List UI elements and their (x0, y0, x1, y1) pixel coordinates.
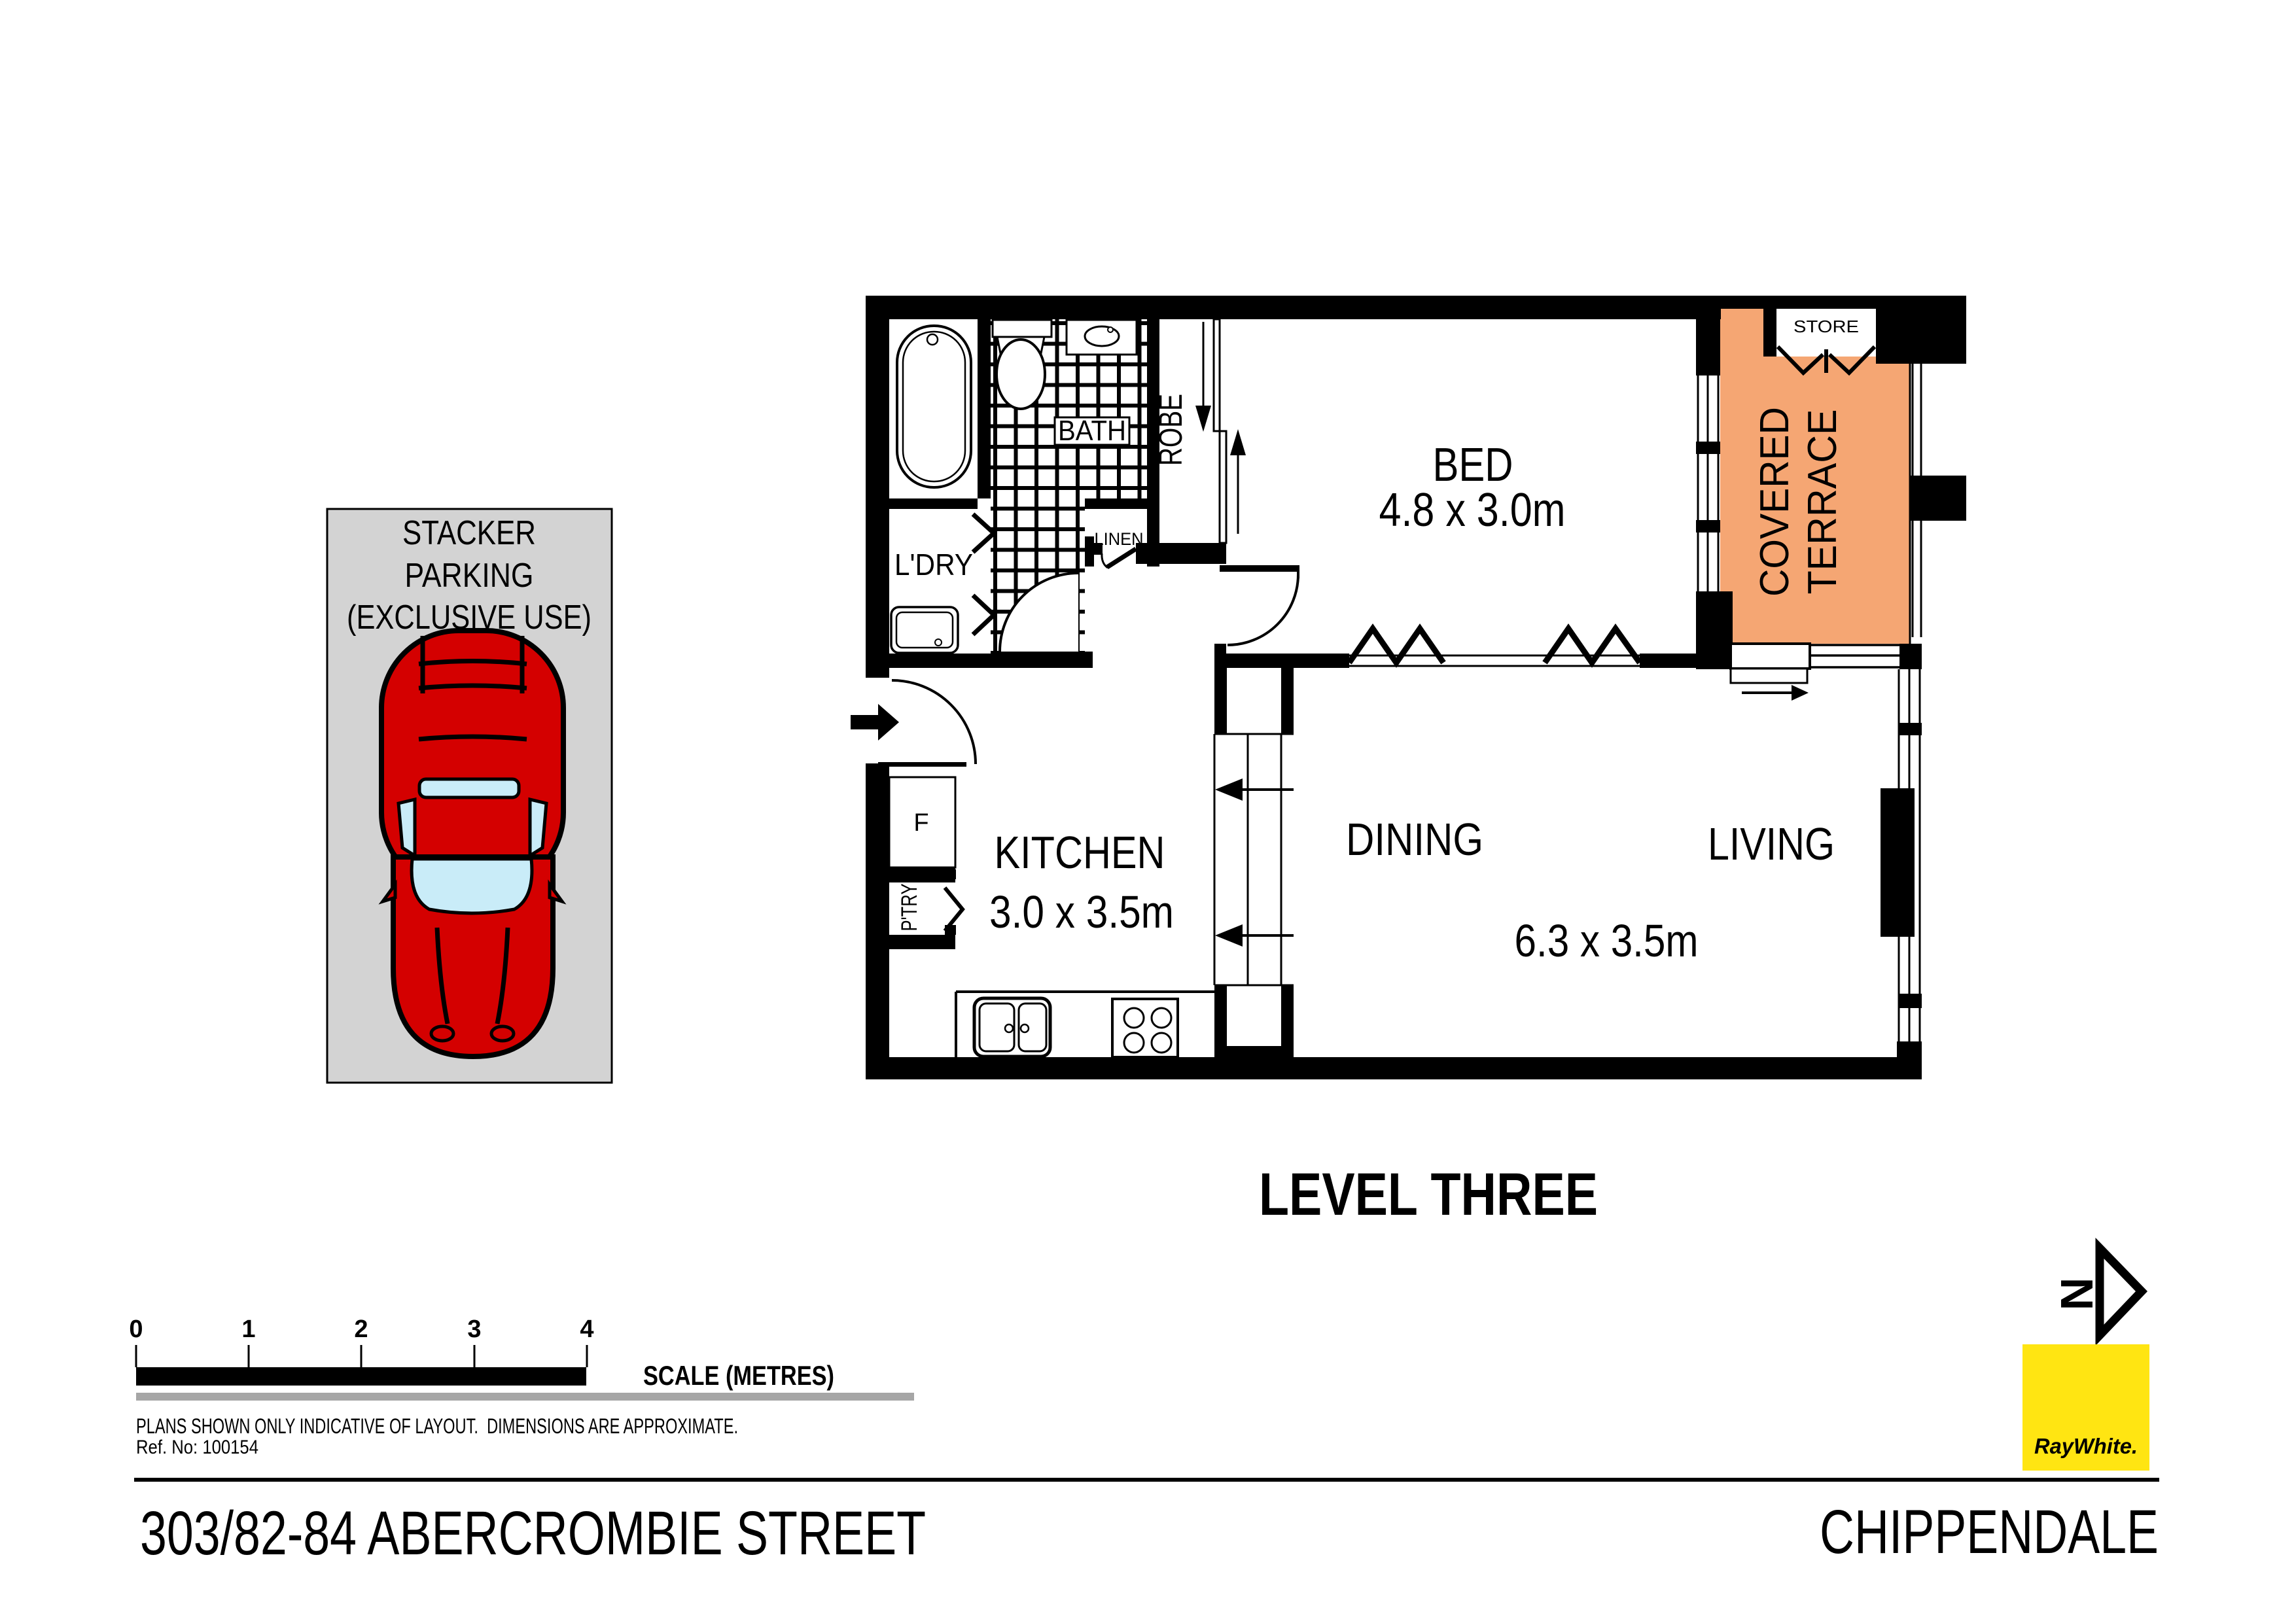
svg-text:LIVING: LIVING (1708, 818, 1835, 869)
svg-text:COVERED: COVERED (1752, 407, 1797, 597)
svg-text:RayWhite.: RayWhite. (2034, 1434, 2138, 1458)
svg-text:TERRACE: TERRACE (1800, 410, 1845, 595)
svg-text:BATH: BATH (1058, 415, 1126, 447)
svg-text:3.0 x 3.5m: 3.0 x 3.5m (989, 886, 1174, 937)
svg-text:LEVEL THREE: LEVEL THREE (1259, 1161, 1598, 1228)
svg-text:303/82-84 ABERCROMBIE STREET: 303/82-84 ABERCROMBIE STREET (140, 1499, 926, 1568)
svg-text:DINING: DINING (1346, 814, 1483, 865)
svg-text:KITCHEN: KITCHEN (995, 827, 1165, 878)
svg-text:STORE: STORE (1793, 317, 1859, 336)
svg-text:N: N (2051, 1278, 2102, 1311)
svg-text:PLANS SHOWN ONLY INDICATIVE OF: PLANS SHOWN ONLY INDICATIVE OF LAYOUT. D… (136, 1414, 738, 1438)
svg-text:3: 3 (467, 1316, 481, 1343)
svg-text:SCALE (METRES): SCALE (METRES) (643, 1360, 834, 1391)
svg-text:BED: BED (1433, 439, 1513, 491)
svg-text:F: F (913, 809, 928, 837)
svg-text:L'DRY: L'DRY (894, 548, 973, 582)
svg-text:4.8 x 3.0m: 4.8 x 3.0m (1379, 484, 1566, 536)
svg-text:STACKER: STACKER (402, 514, 536, 552)
svg-text:Ref. No: 100154: Ref. No: 100154 (136, 1437, 258, 1458)
svg-text:1: 1 (241, 1316, 255, 1343)
svg-text:6.3 x 3.5m: 6.3 x 3.5m (1515, 915, 1699, 966)
svg-text:PARKING: PARKING (405, 557, 534, 595)
svg-text:ROBE: ROBE (1152, 394, 1189, 466)
svg-text:0: 0 (129, 1316, 143, 1343)
svg-text:LINEN: LINEN (1095, 529, 1144, 549)
svg-text:4: 4 (580, 1316, 593, 1343)
svg-text:2: 2 (354, 1316, 368, 1343)
svg-text:P'TRY: P'TRY (897, 884, 922, 932)
svg-text:CHIPPENDALE: CHIPPENDALE (1820, 1497, 2159, 1567)
